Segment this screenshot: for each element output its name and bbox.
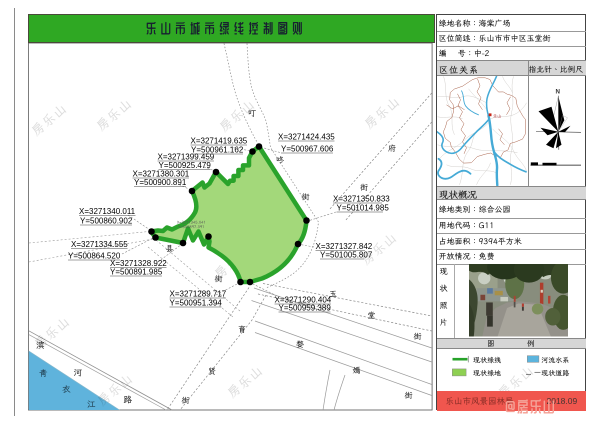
svg-text:Y=501005.807: Y=501005.807 [320, 251, 373, 260]
svg-text:Y=500897.391: Y=500897.391 [178, 225, 204, 230]
svg-text:Y=500967.606: Y=500967.606 [281, 145, 334, 154]
svg-text:河: 河 [74, 368, 83, 379]
svg-text:衣: 衣 [62, 384, 71, 395]
svg-text:街: 街 [405, 391, 413, 401]
svg-text:街: 街 [182, 396, 190, 406]
svg-text:Y=500900.891: Y=500900.891 [134, 178, 187, 187]
svg-text:X=3271334.555: X=3271334.555 [71, 240, 128, 249]
svg-text:街: 街 [414, 332, 422, 342]
svg-text:堂: 堂 [368, 311, 376, 321]
svg-text:咚: 咚 [276, 156, 284, 166]
svg-text:街: 街 [360, 183, 368, 193]
svg-text:青: 青 [39, 368, 48, 379]
svg-text:街: 街 [302, 193, 310, 203]
svg-text:X=3271289.717: X=3271289.717 [170, 290, 227, 299]
svg-text:江: 江 [87, 399, 96, 410]
svg-text:育: 育 [238, 325, 246, 335]
svg-text:贤: 贤 [208, 367, 216, 377]
svg-text:现状绿线: 现状绿线 [473, 355, 501, 364]
svg-text:县: 县 [166, 244, 174, 254]
svg-text:X=3271350.833: X=3271350.833 [333, 195, 390, 204]
svg-text:现状绿地: 现状绿地 [473, 368, 501, 377]
svg-text:Y=500891.985: Y=500891.985 [110, 268, 163, 277]
svg-text:乐山: 乐山 [493, 113, 501, 119]
svg-text:府: 府 [388, 144, 396, 154]
svg-text:Y=500951.394: Y=500951.394 [170, 299, 223, 308]
svg-text:X=3271340.011: X=3271340.011 [79, 207, 136, 216]
svg-text:Y=500959.389: Y=500959.389 [279, 304, 332, 313]
svg-text:Y=500860.902: Y=500860.902 [80, 217, 133, 226]
svg-text:嫣: 嫣 [353, 366, 361, 376]
svg-text:现状道路: 现状道路 [541, 368, 569, 377]
svg-text:婺: 婺 [296, 340, 304, 350]
svg-text:河流水系: 河流水系 [541, 355, 569, 364]
svg-text:路: 路 [124, 395, 133, 406]
svg-text:N: N [555, 88, 560, 95]
svg-text:X=3271419.635: X=3271419.635 [191, 137, 248, 146]
svg-text:X=3271424.435: X=3271424.435 [278, 133, 335, 142]
svg-text:Y=501014.985: Y=501014.985 [337, 204, 390, 213]
